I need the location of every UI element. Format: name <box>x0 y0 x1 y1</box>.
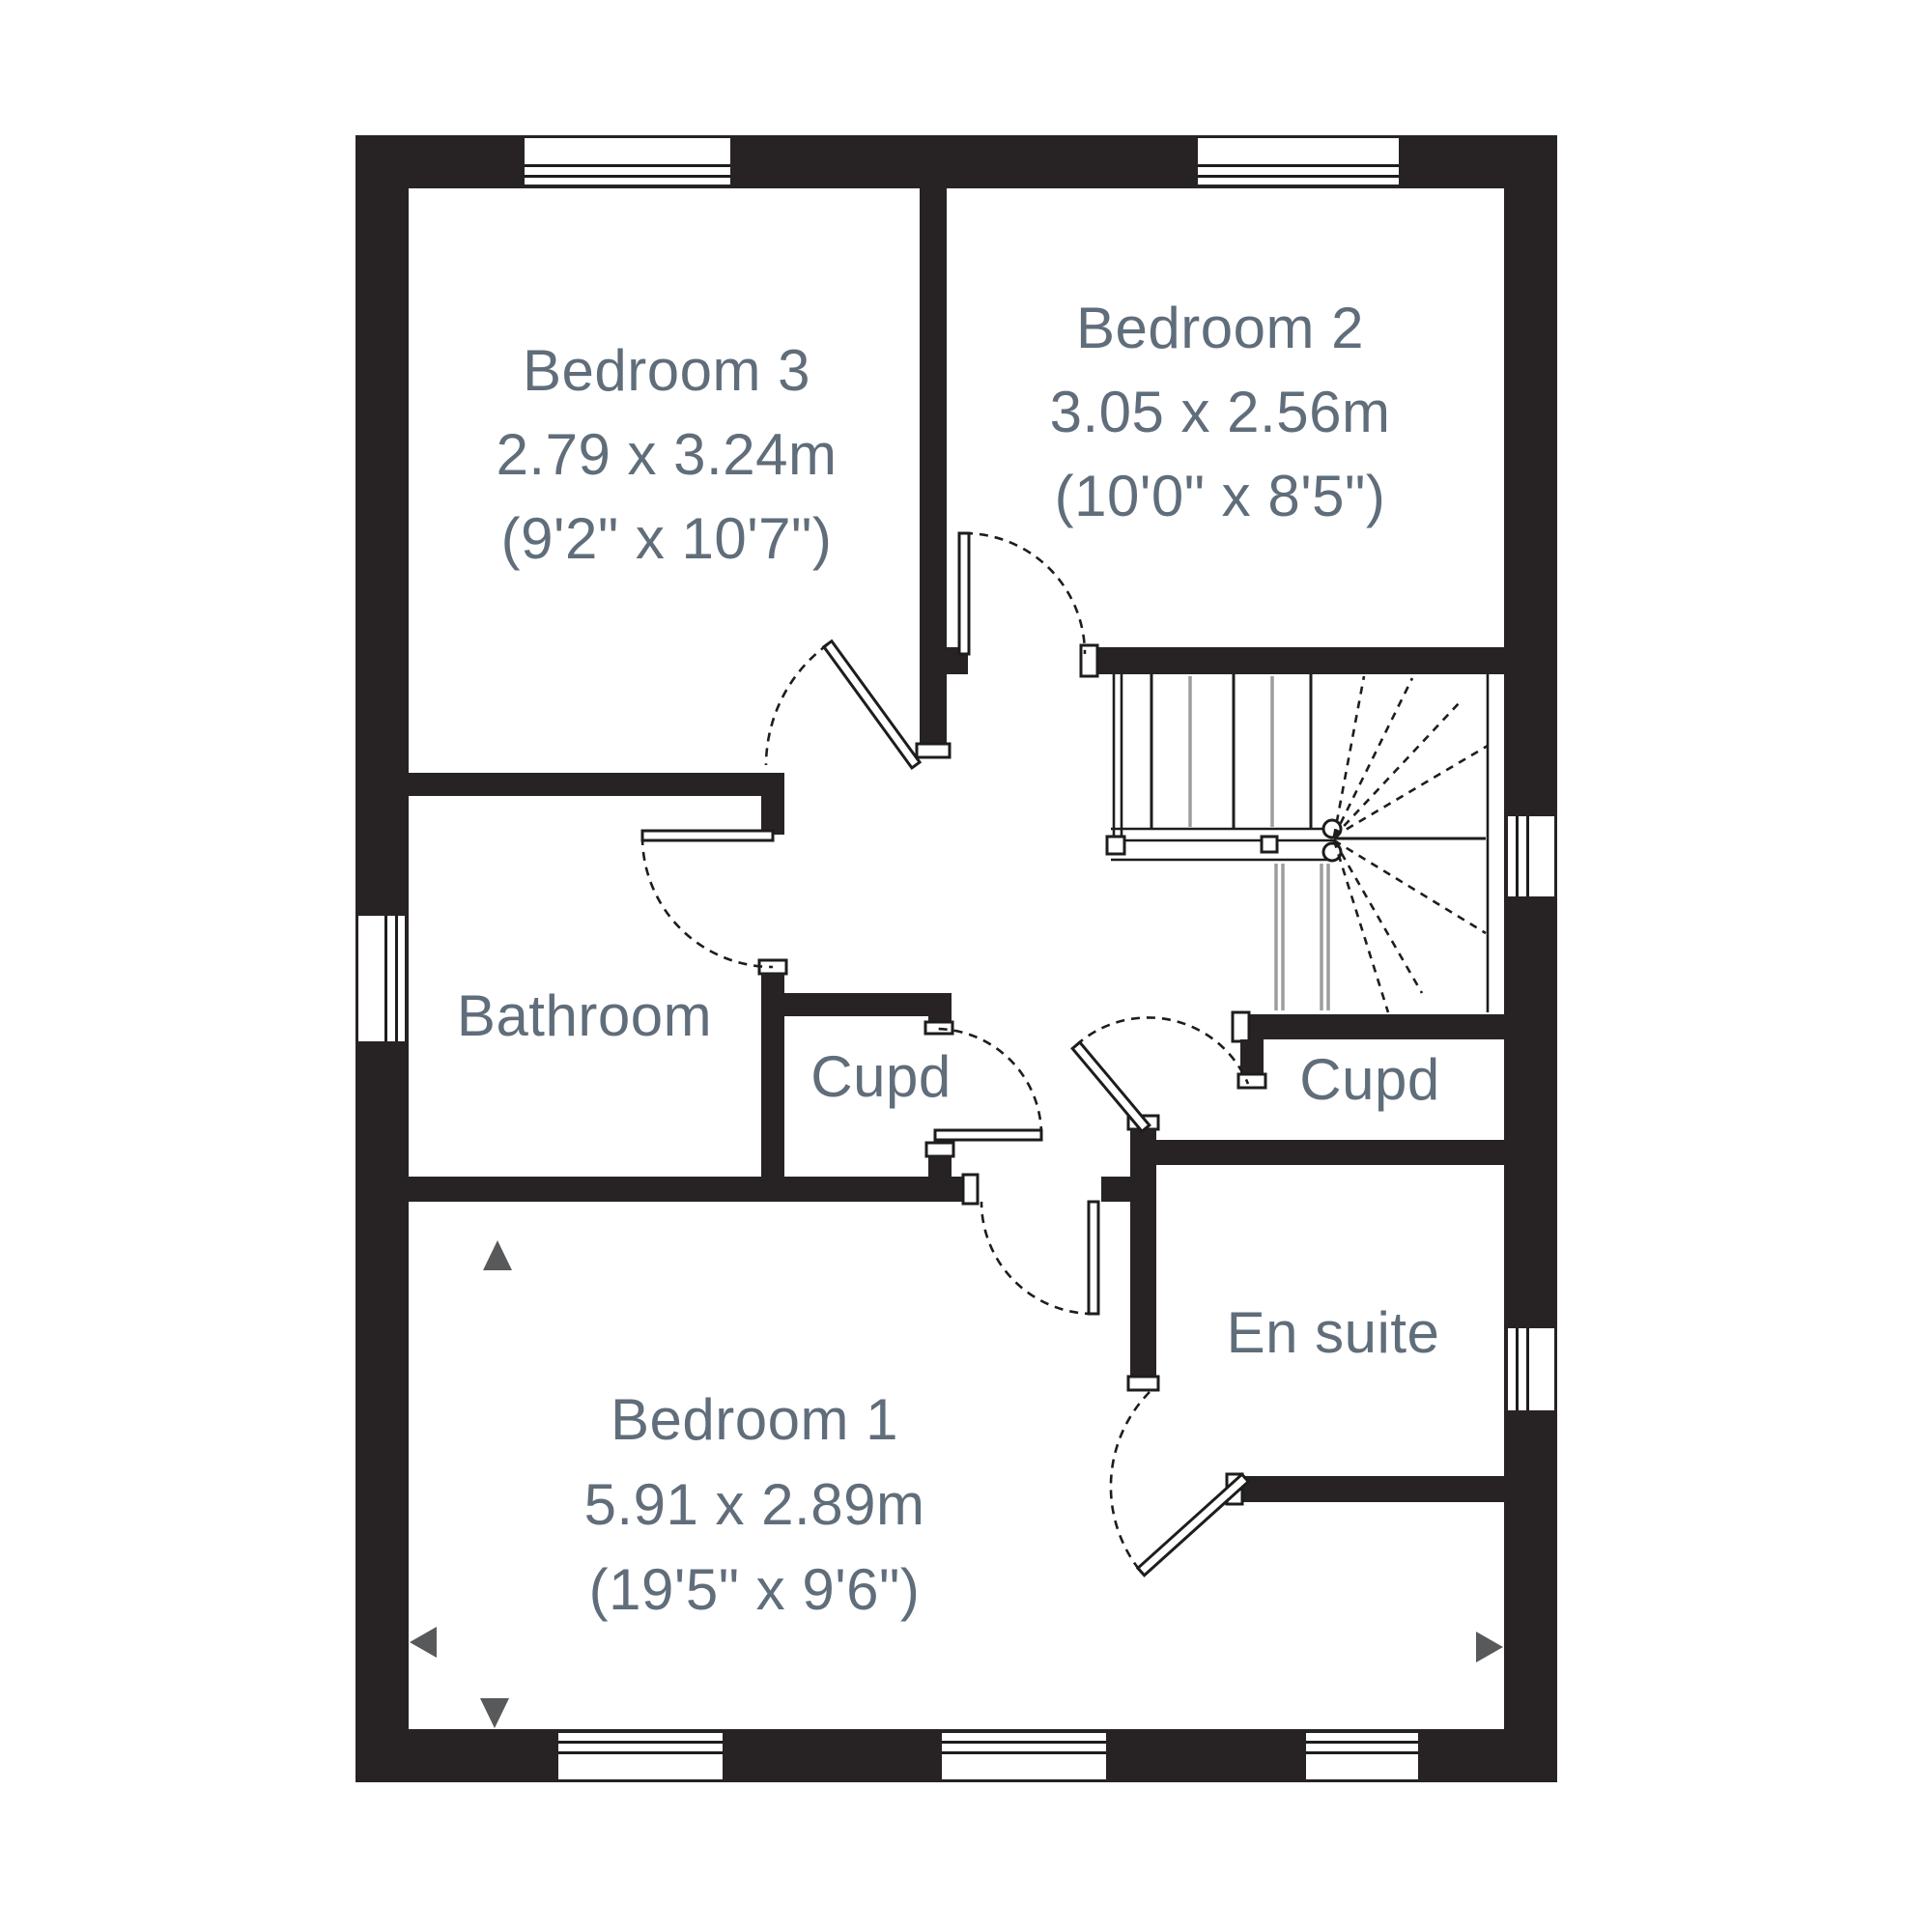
window-icon <box>1306 1733 1418 1779</box>
floorplan-drawing: Bedroom 3 2.79 x 3.24m (9'2" x 10'7") Be… <box>0 0 1932 1932</box>
label-bedroom1: Bedroom 1 5.91 x 2.89m (19'5" x 9'6") <box>584 1387 925 1622</box>
arrow-up-icon <box>483 1240 512 1270</box>
door-bedroom3 <box>766 641 920 768</box>
window-icon <box>525 138 730 185</box>
door-bedroom2 <box>959 533 1085 654</box>
room-size-metric: 2.79 x 3.24m <box>497 422 838 487</box>
door-cupboard-right <box>1072 1017 1248 1131</box>
window-icon <box>1198 138 1399 185</box>
room-name: Cupd <box>1299 1047 1439 1112</box>
window-icon <box>558 1733 723 1779</box>
arrow-right-icon <box>1476 1632 1503 1662</box>
room-name: Bedroom 1 <box>611 1387 898 1452</box>
room-name: En suite <box>1227 1300 1440 1365</box>
label-cupboard-left: Cupd <box>810 1044 951 1109</box>
window-icon <box>358 916 405 1041</box>
room-size-metric: 3.05 x 2.56m <box>1050 380 1391 444</box>
room-size-imperial: (19'5" x 9'6") <box>589 1557 921 1622</box>
label-bedroom2: Bedroom 2 3.05 x 2.56m (10'0" x 8'5") <box>1050 296 1391 528</box>
door-bedroom1 <box>981 1202 1098 1314</box>
window-icon <box>942 1733 1106 1779</box>
window-icon <box>1508 1328 1554 1410</box>
room-size-metric: 5.91 x 2.89m <box>584 1472 925 1537</box>
arrow-left-icon <box>410 1627 437 1658</box>
room-name: Cupd <box>810 1044 951 1109</box>
door-bathroom <box>642 831 773 967</box>
room-size-imperial: (10'0" x 8'5") <box>1055 464 1386 528</box>
label-cupboard-right: Cupd <box>1299 1047 1439 1112</box>
window-icon <box>1508 816 1554 896</box>
staircase <box>1107 674 1488 1012</box>
floorplan-page: Bedroom 3 2.79 x 3.24m (9'2" x 10'7") Be… <box>0 0 1932 1932</box>
arrow-down-icon <box>480 1698 509 1728</box>
label-ensuite: En suite <box>1227 1300 1440 1365</box>
room-size-imperial: (9'2" x 10'7") <box>501 506 833 571</box>
room-name: Bathroom <box>457 983 712 1048</box>
label-bedroom3: Bedroom 3 2.79 x 3.24m (9'2" x 10'7") <box>497 338 838 571</box>
room-labels: Bedroom 3 2.79 x 3.24m (9'2" x 10'7") Be… <box>457 296 1440 1622</box>
room-name: Bedroom 3 <box>523 338 810 403</box>
room-name: Bedroom 2 <box>1076 296 1364 360</box>
label-bathroom: Bathroom <box>457 983 712 1048</box>
